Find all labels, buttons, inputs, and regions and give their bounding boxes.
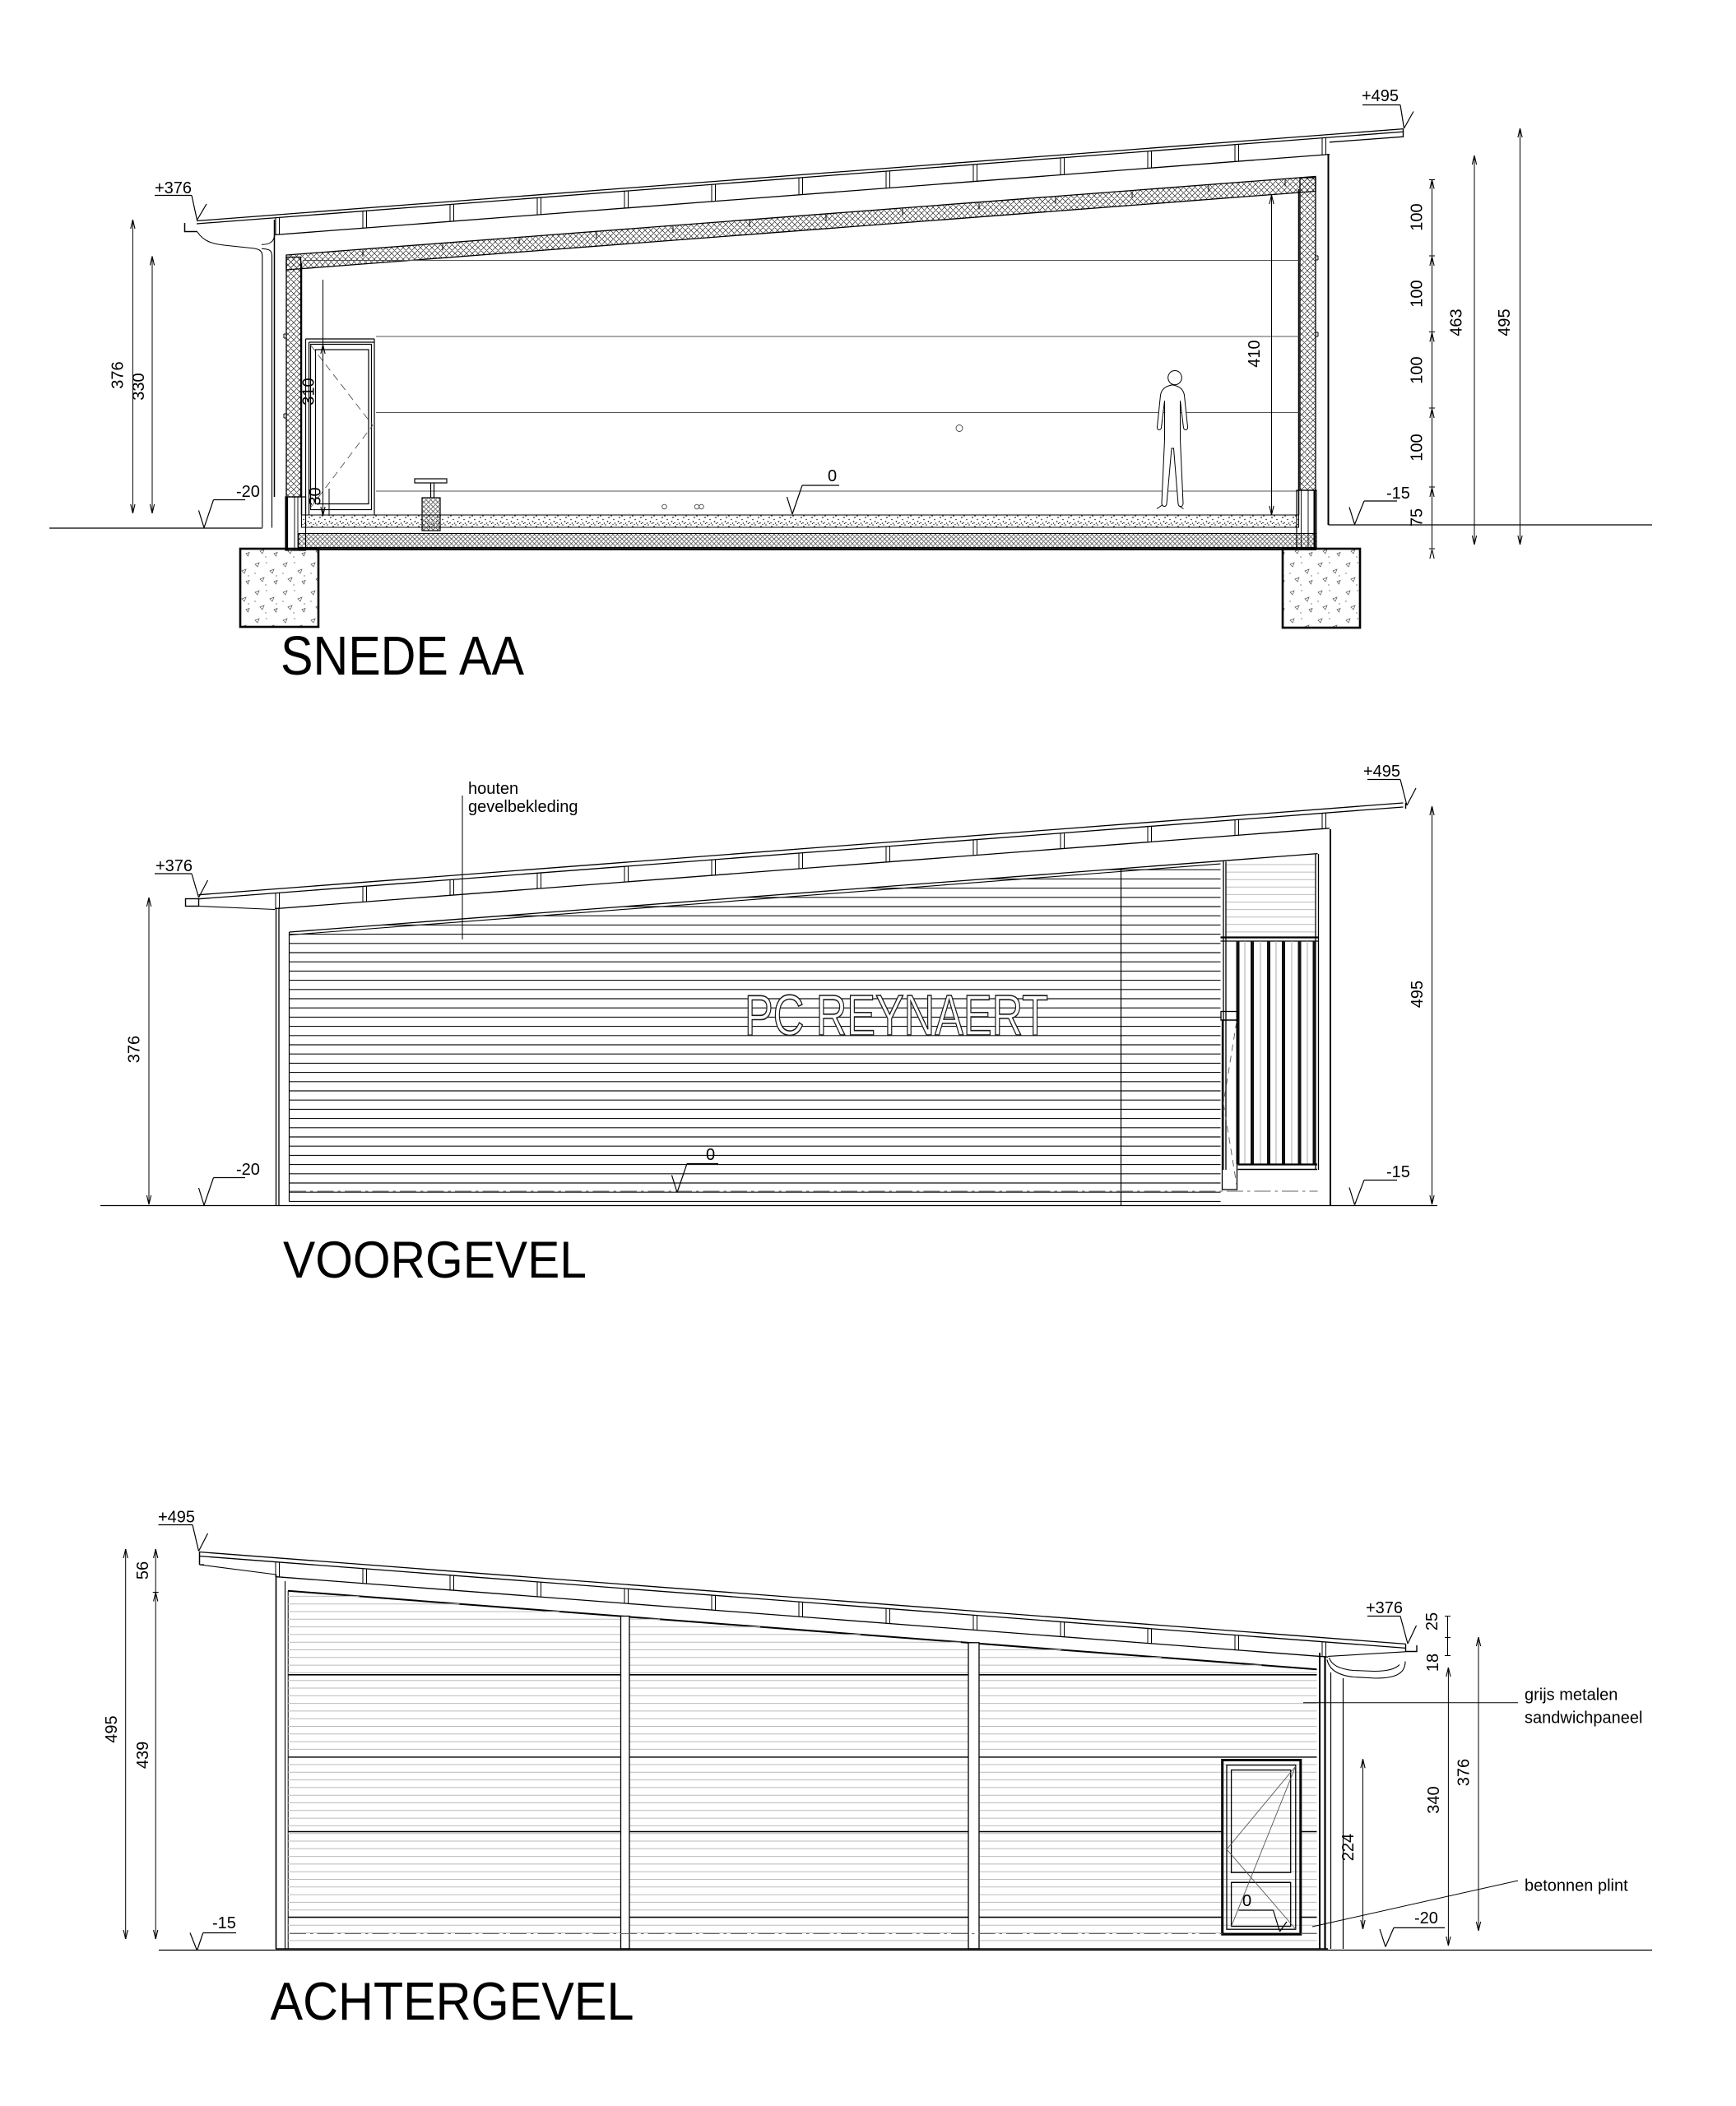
svg-text:-15: -15: [212, 1914, 236, 1932]
svg-text:PC REYNAERT: PC REYNAERT: [745, 983, 1048, 1047]
svg-text:100: 100: [1409, 434, 1427, 461]
svg-text:gevelbekleding: gevelbekleding: [468, 798, 578, 816]
svg-text:439: 439: [134, 1742, 152, 1769]
svg-text:0: 0: [706, 1146, 715, 1164]
svg-text:30: 30: [307, 487, 325, 505]
svg-text:410: 410: [1246, 340, 1264, 367]
svg-text:0: 0: [828, 467, 837, 485]
svg-text:+495: +495: [1362, 87, 1399, 105]
svg-text:25: 25: [1423, 1612, 1441, 1631]
svg-text:100: 100: [1409, 356, 1427, 383]
svg-text:-15: -15: [1386, 485, 1410, 503]
svg-text:0: 0: [1242, 1892, 1251, 1910]
svg-text:-20: -20: [1414, 1909, 1438, 1927]
svg-text:495: 495: [1409, 981, 1427, 1008]
svg-text:+376: +376: [155, 179, 192, 197]
svg-text:+376: +376: [1366, 1599, 1403, 1617]
svg-text:310: 310: [300, 378, 318, 405]
svg-text:100: 100: [1409, 203, 1427, 230]
svg-text:VOORGEVEL: VOORGEVEL: [283, 1232, 587, 1289]
svg-text:+495: +495: [158, 1509, 195, 1527]
svg-text:100: 100: [1409, 280, 1427, 307]
svg-text:463: 463: [1448, 308, 1466, 336]
svg-text:-20: -20: [236, 1161, 260, 1179]
svg-text:sandwichpaneel: sandwichpaneel: [1525, 1709, 1642, 1728]
svg-text:376: 376: [126, 1036, 144, 1063]
svg-text:224: 224: [1339, 1834, 1358, 1861]
svg-text:376: 376: [1455, 1759, 1474, 1786]
svg-text:330: 330: [130, 373, 148, 400]
svg-text:75: 75: [1409, 508, 1427, 526]
svg-text:-20: -20: [236, 483, 260, 501]
svg-text:SNEDE AA: SNEDE AA: [281, 625, 524, 687]
svg-text:+495: +495: [1363, 763, 1400, 781]
svg-text:18: 18: [1424, 1654, 1442, 1672]
svg-text:grijs metalen: grijs metalen: [1525, 1686, 1618, 1705]
svg-text:340: 340: [1425, 1786, 1443, 1813]
svg-text:betonnen plint: betonnen plint: [1525, 1877, 1628, 1895]
svg-text:houten: houten: [468, 780, 518, 798]
svg-text:376: 376: [109, 361, 128, 388]
svg-text:+376: +376: [155, 857, 193, 875]
svg-text:495: 495: [103, 1715, 121, 1742]
svg-text:495: 495: [1496, 308, 1514, 336]
svg-text:ACHTERGEVEL: ACHTERGEVEL: [271, 1972, 634, 2031]
svg-text:56: 56: [134, 1561, 152, 1579]
svg-text:-15: -15: [1386, 1163, 1410, 1181]
